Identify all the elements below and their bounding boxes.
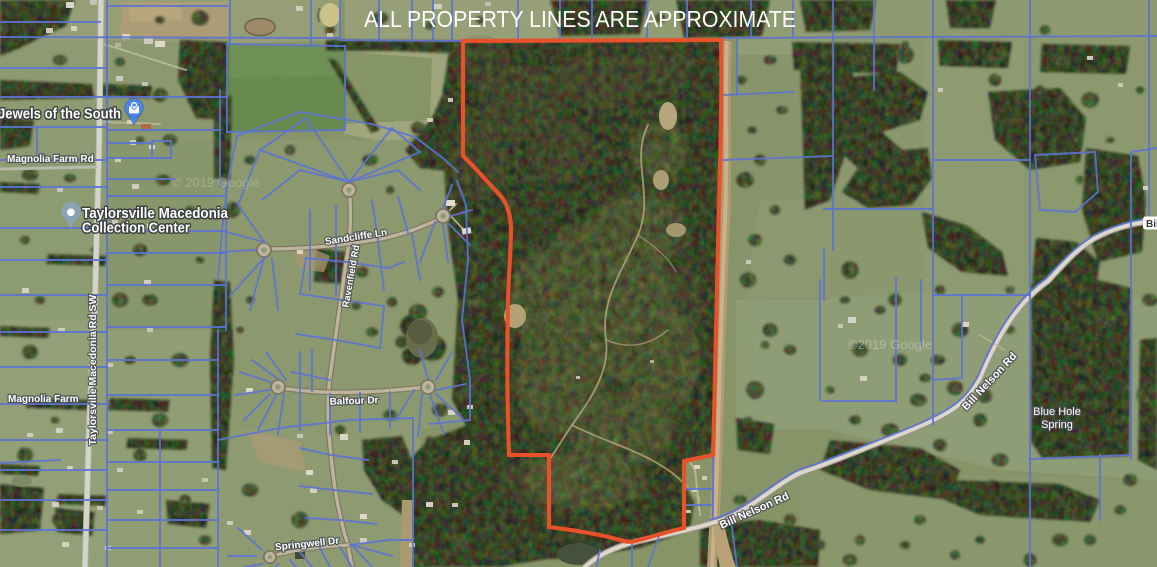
svg-text:Spring: Spring bbox=[1041, 419, 1073, 431]
svg-text:Taylorsville Macedonia Rd SW: Taylorsville Macedonia Rd SW bbox=[87, 294, 99, 445]
svg-text:Magnolia Farm Rd: Magnolia Farm Rd bbox=[7, 154, 94, 165]
svg-text:Magnolia Farm: Magnolia Farm bbox=[8, 394, 79, 405]
svg-text:Jewels of the South: Jewels of the South bbox=[0, 106, 121, 123]
svg-text:©2019 Google: ©2019 Google bbox=[848, 337, 932, 352]
svg-text:Collection Center: Collection Center bbox=[82, 220, 190, 237]
svg-text:Blue Hole: Blue Hole bbox=[1033, 406, 1081, 418]
svg-text:ALL PROPERTY LINES ARE APPROXI: ALL PROPERTY LINES ARE APPROXIMATE bbox=[364, 6, 796, 32]
svg-text:© 2019 Google: © 2019 Google bbox=[172, 175, 260, 190]
svg-text:Balfour Dr: Balfour Dr bbox=[329, 395, 378, 408]
svg-text:Bil: Bil bbox=[1146, 219, 1157, 230]
